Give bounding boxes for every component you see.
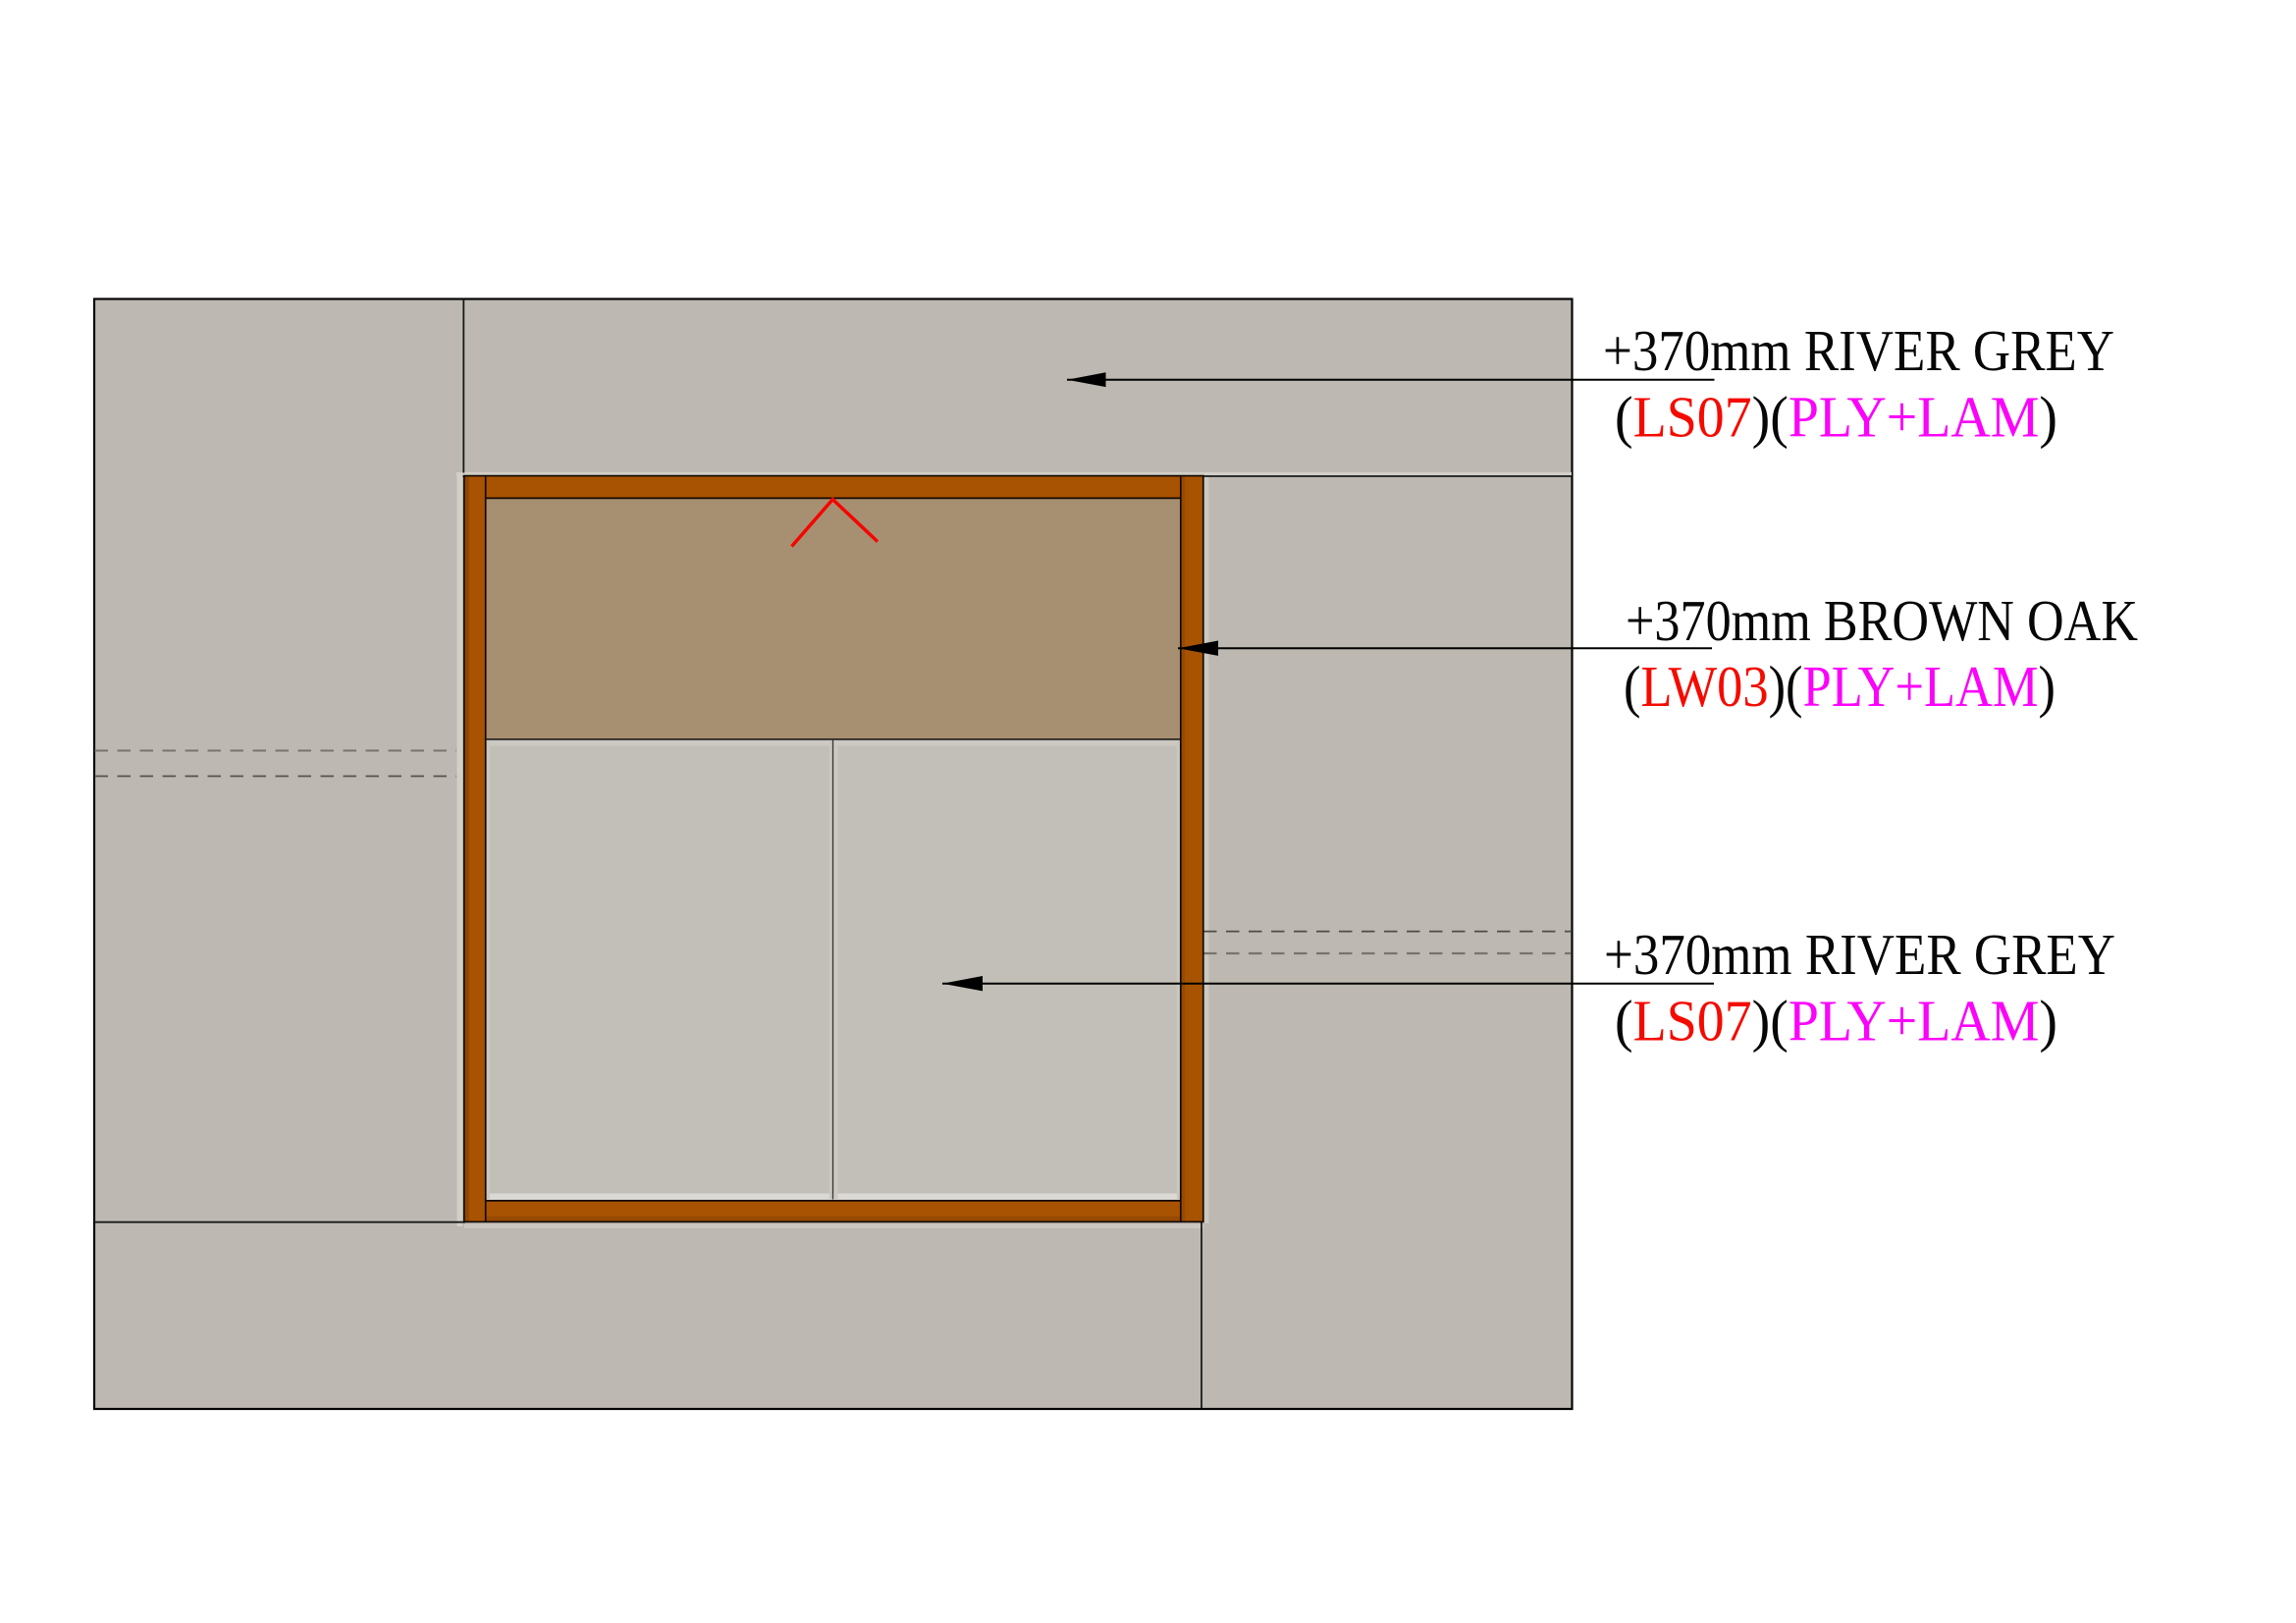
svg-text:+370mm RIVER GREY: +370mm RIVER GREY [1604, 922, 2115, 987]
svg-text:+370mm BROWN OAK: +370mm BROWN OAK [1626, 588, 2138, 653]
svg-text:(LS07)(PLY+LAM): (LS07)(PLY+LAM) [1615, 385, 2057, 450]
svg-text:(LW03)(PLY+LAM): (LW03)(PLY+LAM) [1624, 654, 2056, 719]
svg-text:(LS07)(PLY+LAM): (LS07)(PLY+LAM) [1615, 989, 2057, 1054]
svg-text:+370mm RIVER GREY: +370mm RIVER GREY [1603, 318, 2114, 383]
